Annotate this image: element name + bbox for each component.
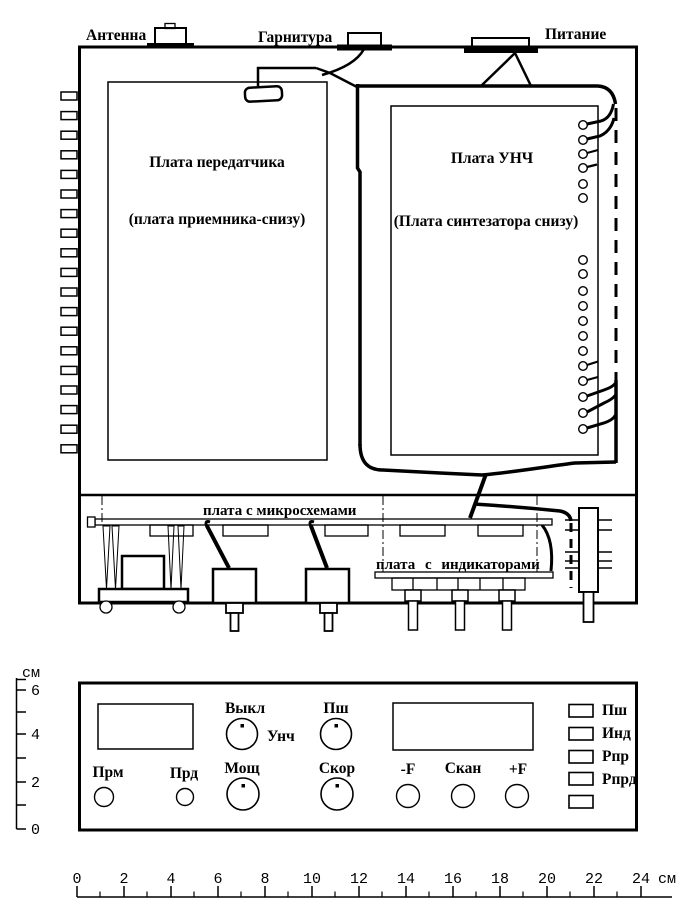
- transmitter-board-title: Плата передатчика: [149, 154, 285, 171]
- volume-knob-side-label: Унч: [267, 728, 295, 745]
- hruler-tick-24: 24: [632, 871, 650, 888]
- hruler-tick-20: 20: [538, 871, 556, 888]
- potentiometer-blocks: [206, 522, 349, 631]
- hruler-tick-14: 14: [397, 871, 415, 888]
- frequency-display-window: [393, 703, 533, 750]
- hruler-tick-8: 8: [260, 871, 269, 888]
- vruler-tick-2: 2: [31, 775, 40, 792]
- vruler-tick-0: 0: [31, 822, 40, 839]
- horizontal-ruler: 0 2 4 6 8 10 12 14 16 18 20 22 24 см: [72, 871, 676, 897]
- front-panel: Выкл Унч Пш Прм Прд Мощ Скор -F Скан +F …: [80, 683, 637, 830]
- speed-knob-label: Скор: [319, 760, 355, 777]
- indicator-board-label: плата с индикаторами: [376, 557, 540, 573]
- speed-knob-marker: [336, 784, 340, 788]
- antenna-connector: [147, 24, 194, 49]
- chips-board-label: плата с микросхемами: [203, 503, 357, 519]
- squelch-knob: [321, 719, 352, 750]
- power-wiring: [481, 53, 531, 86]
- freq-up-button: [506, 785, 529, 808]
- chips-board: [88, 517, 553, 536]
- headset-label: Гарнитура: [258, 29, 333, 46]
- hruler-tick-2: 2: [119, 871, 128, 888]
- legend-label-ind: Инд: [602, 725, 631, 742]
- rx-led-label: Прм: [93, 764, 124, 781]
- vruler-tick-4: 4: [31, 727, 40, 744]
- vertical-ruler: см 6 4 2 0: [17, 665, 41, 839]
- radio-layout-diagram: Антенна Гарнитура Питание Плата передатч…: [0, 0, 682, 908]
- transmitter-board-subtitle: (плата приемника-снизу): [129, 211, 306, 228]
- squelch-knob-marker: [335, 724, 339, 728]
- antenna-label: Антенна: [86, 27, 146, 44]
- volume-knob-marker: [241, 724, 245, 728]
- diagram-svg: Антенна Гарнитура Питание Плата передатч…: [0, 0, 682, 908]
- unch-board-subtitle: (Плата синтезатора снизу): [394, 213, 578, 230]
- freq-down-button-label: -F: [401, 761, 416, 778]
- hruler-tick-18: 18: [491, 871, 509, 888]
- speed-knob: [321, 778, 353, 810]
- power-knob-marker: [242, 784, 246, 788]
- hruler-tick-12: 12: [350, 871, 368, 888]
- scan-button: [452, 785, 475, 808]
- unch-board-title: Плата УНЧ: [451, 150, 534, 167]
- freq-down-button: [397, 785, 420, 808]
- vruler-tick-6: 6: [31, 683, 40, 700]
- legend-indicators: Пш Инд Рпр Рпрд: [569, 702, 637, 808]
- horizontal-ruler-unit: см: [658, 871, 676, 888]
- rx-led: [95, 788, 114, 807]
- tx-led: [177, 789, 194, 806]
- left-heatsink-fins: [61, 92, 77, 453]
- hruler-tick-10: 10: [303, 871, 321, 888]
- power-knob: [227, 778, 259, 810]
- cable-to-indicator-board: [542, 525, 552, 571]
- hruler-tick-16: 16: [444, 871, 462, 888]
- hruler-tick-6: 6: [213, 871, 222, 888]
- unch-pin-wires: [587, 104, 616, 428]
- speaker-assembly: [99, 526, 188, 613]
- squelch-knob-label: Пш: [323, 700, 348, 717]
- power-label: Питание: [545, 26, 606, 43]
- transmitter-board: [108, 82, 327, 460]
- power-knob-label: Мощ: [224, 760, 259, 777]
- hruler-tick-4: 4: [166, 871, 175, 888]
- headset-wiring: [245, 49, 364, 102]
- hruler-tick-0: 0: [72, 871, 81, 888]
- indicator-board: [375, 572, 553, 630]
- volume-knob: [227, 719, 258, 750]
- tx-led-label: Прд: [170, 765, 198, 782]
- legend-label-rprd: Рпрд: [602, 771, 637, 788]
- mic-element: [245, 86, 283, 102]
- legend-label-rpr: Рпр: [602, 748, 629, 765]
- volume-knob-label: Выкл: [225, 700, 265, 717]
- hruler-tick-22: 22: [585, 871, 603, 888]
- legend-label-psh: Пш: [602, 702, 627, 719]
- scan-button-label: Скан: [445, 760, 482, 777]
- left-display-window: [98, 704, 193, 749]
- freq-up-button-label: +F: [509, 761, 527, 778]
- front-panel-outline: [80, 683, 637, 830]
- unch-pin-circles: [579, 121, 588, 434]
